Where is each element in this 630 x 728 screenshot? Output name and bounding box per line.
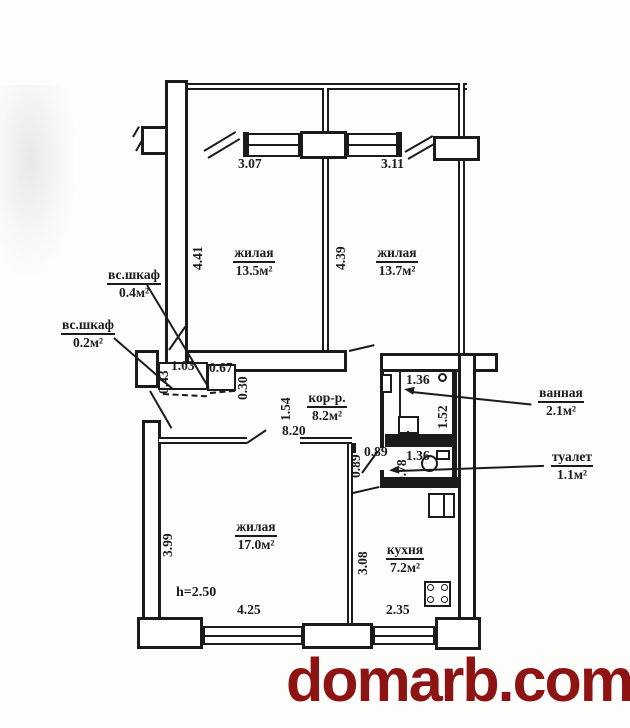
window-living2	[347, 133, 398, 157]
room-name: жилая	[233, 245, 274, 263]
window-cap	[243, 132, 249, 157]
door-swing-living3	[246, 429, 266, 444]
stove-burner	[441, 584, 448, 591]
room-label-living2: жилая 13.7м²	[362, 245, 432, 279]
room-name: кухня	[386, 542, 424, 560]
floor-plan: жилая 13.5м² жилая 13.7м² вс.шкаф 0.4м² …	[0, 0, 630, 728]
dim-wc-width: 1.36	[406, 449, 430, 463]
room-label-wc: туалет 1.1м²	[539, 449, 605, 483]
dim-living3-width: 4.25	[237, 603, 261, 617]
washbasin-tap	[407, 431, 409, 436]
dim-corridor-width: 1.54	[279, 397, 293, 421]
wall-break-mark	[132, 126, 140, 137]
watermark: domarb.com	[286, 650, 630, 711]
room-area: 7.2м²	[370, 560, 440, 576]
balcony-door-swing	[207, 138, 240, 159]
wall-left-protrusion	[141, 126, 168, 155]
dim-closet1-depth: 0.43	[157, 370, 171, 394]
stove-burner	[427, 596, 434, 603]
room-name: туалет	[551, 449, 593, 467]
dim-kitchen-width: 2.35	[386, 603, 410, 617]
room-label-bath: ванная 2.1м²	[527, 385, 595, 419]
wall-right-upper	[458, 83, 465, 355]
room-name: вс.шкаф	[107, 267, 161, 285]
scan-smudge	[0, 85, 75, 275]
wall-bottom-corner-left	[137, 617, 203, 649]
room-name: ванная	[538, 385, 584, 403]
wall-living3-north-b	[300, 437, 352, 444]
kitchen-duct-divider	[443, 495, 445, 516]
room-area: 1.1м²	[539, 467, 605, 483]
room-area: 0.2м²	[46, 335, 130, 351]
window-kitchen	[373, 626, 435, 645]
dim-ceiling-height: h=2.50	[176, 586, 216, 600]
window-living1	[243, 133, 300, 157]
room-label-kitchen: кухня 7.2м²	[370, 542, 440, 576]
wall-bath-north	[380, 353, 498, 372]
room-label-closet-04: вс.шкаф 0.4м²	[92, 267, 176, 301]
balcony-door-swing	[408, 142, 437, 160]
toilet-tank	[436, 450, 450, 460]
room-label-corridor: кор-р. 8.2м²	[296, 390, 358, 424]
wall-bath-wc-divider	[385, 434, 453, 447]
dim-closet1-width: 1.03	[171, 359, 195, 373]
dim-niche-width: 0.89	[349, 454, 363, 478]
dim-living2-height: 4.39	[334, 246, 348, 270]
wall-bath-east	[452, 372, 457, 478]
vent-circle	[438, 373, 447, 382]
kitchen-duct	[428, 493, 455, 518]
pillar-center	[300, 131, 347, 159]
wall-wc-south	[380, 477, 458, 488]
dim-living2-width: 3.11	[381, 157, 404, 171]
door-swing-kitchen	[353, 486, 380, 494]
dim-corridor-length: 8.20	[282, 424, 306, 438]
room-area: 8.2м²	[296, 408, 358, 424]
window-cap	[396, 132, 402, 157]
wall-partition-rooms-top	[322, 88, 329, 135]
dim-living3-height: 3.99	[161, 533, 175, 557]
dim-bath-depth: 1.52	[436, 405, 450, 429]
room-label-living3: жилая 17.0м²	[221, 519, 291, 553]
dim-closet2-width: 0.67	[209, 361, 233, 375]
room-area: 13.7м²	[362, 263, 432, 279]
room-label-closet-02: вс.шкаф 0.2м²	[46, 317, 130, 351]
room-label-living1: жилая 13.5м²	[219, 245, 289, 279]
room-area: 17.0м²	[221, 537, 291, 553]
dim-closet2-depth: 0.30	[236, 376, 250, 400]
bath-duct	[381, 374, 392, 393]
dim-living1-height: 4.41	[191, 246, 205, 270]
pillar-right	[433, 136, 480, 161]
bath-inner-line	[399, 372, 401, 416]
room-name: кор-р.	[307, 390, 346, 408]
door-swing-living2	[349, 344, 375, 352]
stove-burner	[441, 596, 448, 603]
room-name: вс.шкаф	[61, 317, 115, 335]
wall-living3-north-a	[159, 437, 247, 444]
dim-bath-width: 1.36	[406, 373, 430, 387]
stove-burner	[427, 584, 434, 591]
window-living3	[203, 626, 303, 645]
room-name: жилая	[376, 245, 417, 263]
dim-living1-width: 3.07	[238, 157, 262, 171]
wall-partition-rooms	[322, 157, 329, 352]
dim-kitchen-height: 3.08	[356, 551, 370, 575]
room-area: 2.1м²	[527, 403, 595, 419]
dim-niche-depth: 0.89	[364, 445, 388, 459]
wall-left-lower	[142, 420, 161, 625]
room-area: 13.5м²	[219, 263, 289, 279]
room-area: 0.4м²	[92, 285, 176, 301]
room-name: жилая	[235, 519, 276, 537]
